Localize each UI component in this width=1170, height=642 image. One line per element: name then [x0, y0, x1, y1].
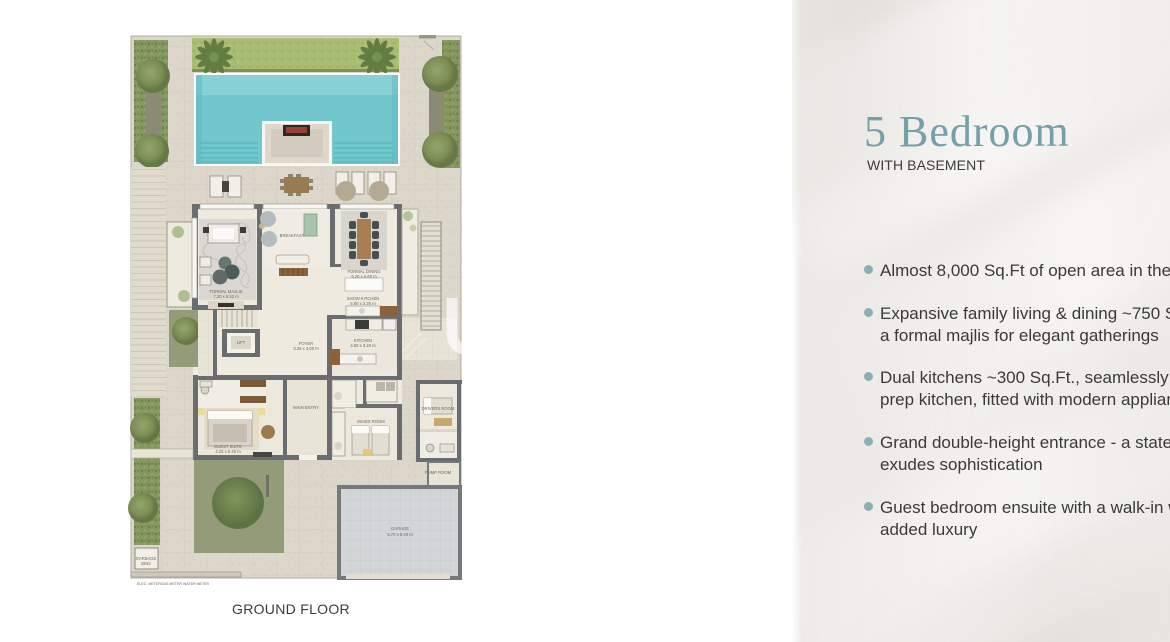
svg-text:BINS: BINS [141, 561, 151, 566]
svg-text:5.70 x 5.40 m: 5.70 x 5.40 m [387, 532, 413, 537]
svg-text:5.60 x 2.25 m: 5.60 x 2.25 m [350, 301, 376, 306]
svg-text:GARAGE: GARAGE [391, 526, 409, 531]
svg-text:PUMP ROOM: PUMP ROOM [425, 470, 452, 475]
svg-text:3.35 x 3.00 m: 3.35 x 3.00 m [293, 346, 319, 351]
svg-text:MAIDS ROOM: MAIDS ROOM [357, 419, 385, 424]
svg-text:GAS METER WATER METER: GAS METER WATER METER [161, 582, 210, 586]
svg-text:ELEC. METER: ELEC. METER [137, 582, 161, 586]
svg-text:MAIN ENTRY: MAIN ENTRY [293, 405, 319, 410]
svg-text:5.20 x 5.65 m: 5.20 x 5.65 m [351, 274, 377, 279]
svg-text:4.60 x 3.20 m: 4.60 x 3.20 m [350, 343, 376, 348]
svg-text:DRIVERS ROOM: DRIVERS ROOM [422, 406, 455, 411]
svg-text:4.25 x 5.40 m: 4.25 x 5.40 m [215, 449, 241, 454]
svg-text:BREAKFAST: BREAKFAST [280, 233, 305, 238]
svg-text:7.20 x 6.50 m: 7.20 x 6.50 m [213, 294, 239, 299]
svg-text:LIFT: LIFT [237, 340, 246, 345]
